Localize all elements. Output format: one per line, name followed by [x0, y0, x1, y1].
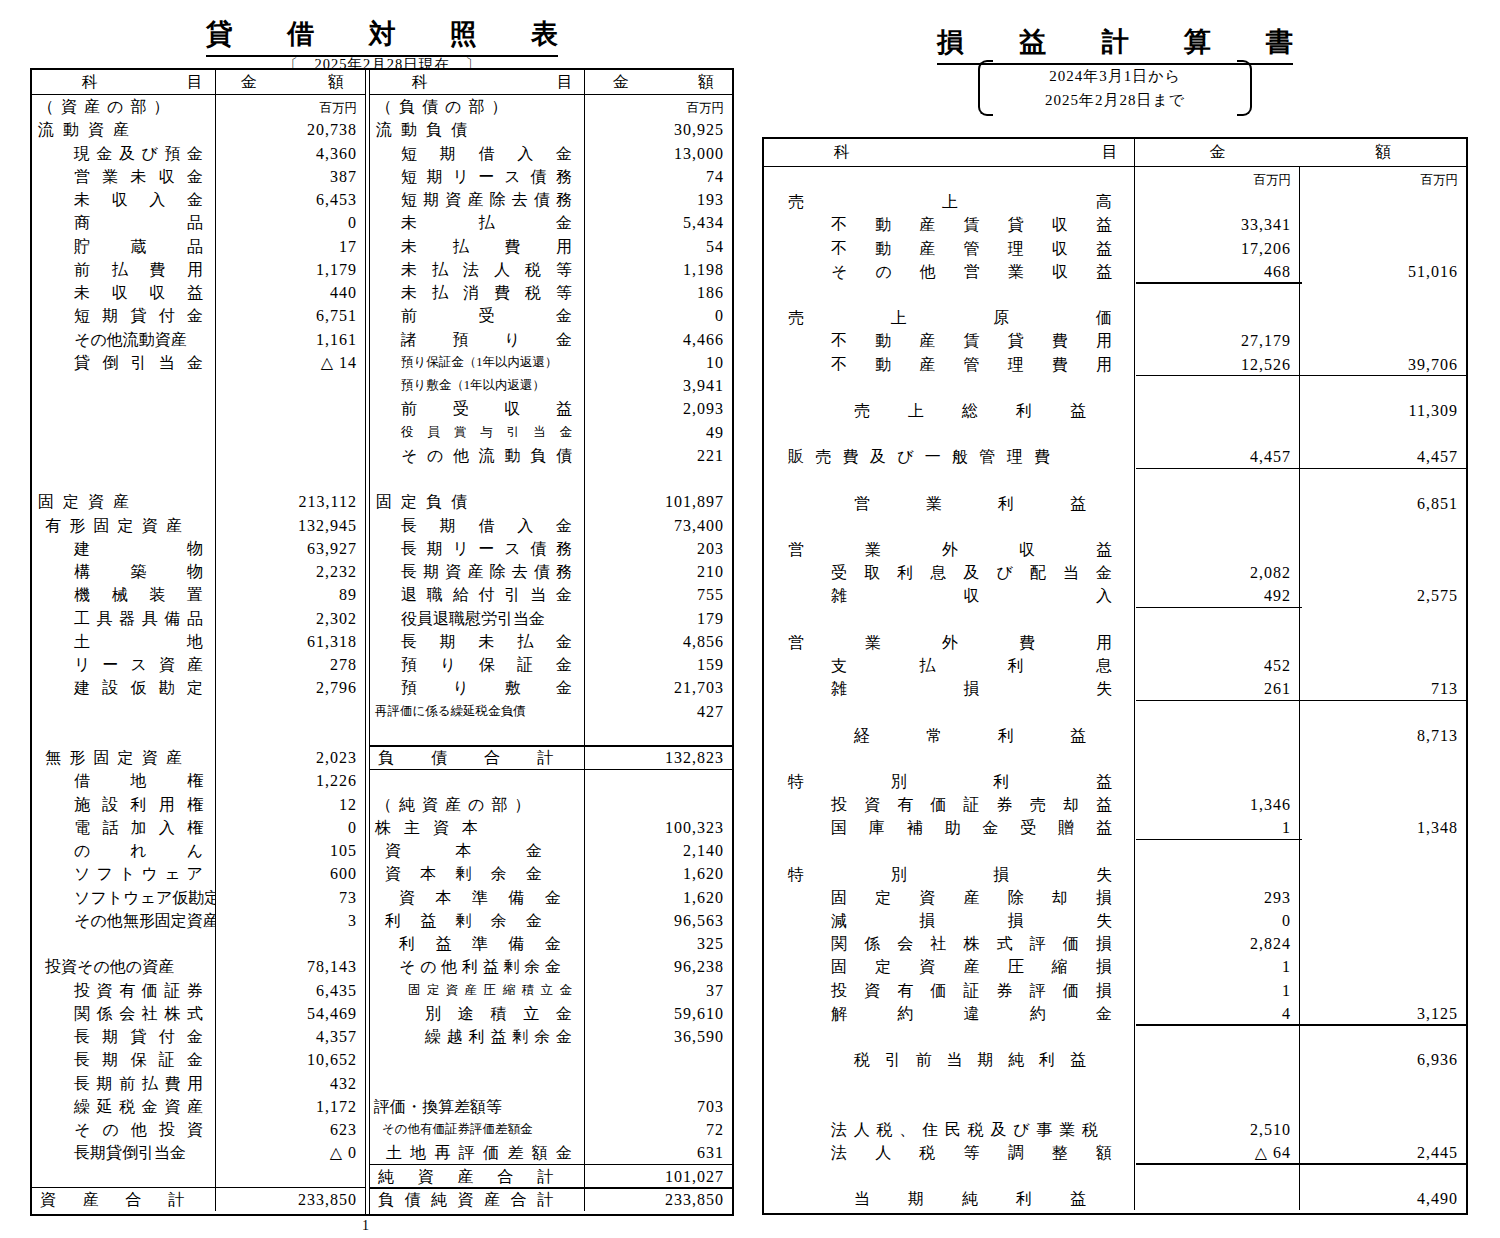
amount-value: 30,925 — [585, 118, 732, 141]
amount-value: 132,945 — [216, 514, 365, 537]
amount-value: 37 — [585, 979, 732, 1002]
account-label: 資本剰余金 — [370, 862, 585, 885]
balance-sheet-header-row: 科目 金額 — [32, 70, 365, 95]
table-row: 固定資産除却損293 — [764, 886, 1466, 909]
table-row: 有形固定資産132,945 — [32, 514, 365, 537]
account-label: 売上総利益 — [764, 399, 1135, 422]
account-label: 再評価に係る繰延税金負債 — [370, 700, 585, 723]
amount-value: 0 — [585, 304, 732, 327]
table-row: 固定資産圧縮損1 — [764, 955, 1466, 978]
amount-value — [1300, 955, 1466, 978]
account-label: 不動産管理費用 — [764, 353, 1135, 376]
amount-value: 1,348 — [1300, 816, 1466, 839]
amount-value — [585, 723, 732, 746]
amount-value — [1135, 700, 1300, 723]
table-row: （純資産の部） — [370, 793, 732, 816]
amount-value — [1135, 376, 1300, 399]
table-row — [32, 932, 365, 955]
balance-sheet-assets-half: 科目 金額 （資産の部）百万円流動資産20,738現金及び預金4,360営業未収… — [32, 70, 366, 1214]
amount-value: 89 — [216, 583, 365, 606]
account-label — [764, 608, 1135, 631]
amount-value — [1300, 770, 1466, 793]
amount-value: 33,341 — [1135, 213, 1300, 236]
table-row: 前払費用1,179 — [32, 258, 365, 281]
profit-loss-title-wrap: 損益計算書 — [762, 24, 1468, 65]
amount-value: 293 — [1135, 886, 1300, 909]
table-row — [370, 1048, 732, 1071]
amount-value — [216, 444, 365, 467]
table-row: 関係会社株式54,469 — [32, 1002, 365, 1025]
amount-value: 10 — [585, 351, 732, 374]
amount-value: 61,318 — [216, 630, 365, 653]
table-row: 受取利息及び配当金2,082 — [764, 561, 1466, 584]
amount-value: 233,850 — [216, 1188, 365, 1211]
account-label: 減損損失 — [764, 909, 1135, 932]
table-row — [32, 723, 365, 746]
table-row — [764, 1025, 1466, 1048]
account-label: 固定負債 — [370, 490, 585, 513]
account-label — [32, 700, 216, 723]
table-row: その他有価証券評価差額金72 — [370, 1118, 732, 1141]
column-header-account: 科目 — [764, 139, 1135, 166]
amount-value: 11,309 — [1300, 399, 1466, 422]
table-row — [32, 374, 365, 397]
amount-value: 59,610 — [585, 1002, 732, 1025]
table-row: 未払金5,434 — [370, 211, 732, 234]
account-label: 資産合計 — [32, 1188, 216, 1211]
account-label: 固定資産圧縮積立金 — [370, 979, 585, 1002]
account-label: 長期資産除去債務 — [370, 560, 585, 583]
table-row — [764, 283, 1466, 306]
account-label: 固定資産除却損 — [764, 886, 1135, 909]
amount-value: 63,927 — [216, 537, 365, 560]
table-row: 不動産管理収益17,206 — [764, 237, 1466, 260]
account-label — [32, 723, 216, 746]
account-label: 営業外費用 — [764, 631, 1135, 654]
table-row — [370, 467, 732, 490]
column-header-account: 科目 — [370, 70, 585, 94]
account-label: 利益剰余金 — [370, 909, 585, 932]
amount-value — [1300, 608, 1466, 631]
account-label: ソフトウェア仮勘定 — [32, 886, 216, 909]
account-label: 法人税、住民税及び事業税 — [764, 1118, 1135, 1141]
table-row: 販売費及び一般管理費4,4574,457 — [764, 445, 1466, 468]
account-label: 不動産管理収益 — [764, 237, 1135, 260]
amount-value: 73,400 — [585, 514, 732, 537]
table-row: 諸預り金4,466 — [370, 328, 732, 351]
amount-value — [1135, 1071, 1300, 1094]
account-label — [764, 283, 1135, 306]
account-label: 預り保証金 — [370, 653, 585, 676]
amount-value: 203 — [585, 537, 732, 560]
amount-value — [1300, 631, 1466, 654]
table-row — [370, 769, 732, 792]
table-row — [764, 422, 1466, 445]
amount-value — [1135, 515, 1300, 538]
account-label: （資産の部） — [32, 95, 216, 118]
amount-value — [1135, 1095, 1300, 1118]
amount-value — [1135, 422, 1300, 445]
table-row: 株主資本100,323 — [370, 816, 732, 839]
table-row: 不動産賃貸収益33,341 — [764, 213, 1466, 236]
table-row — [32, 1165, 365, 1188]
table-row: 無形固定資産2,023 — [32, 746, 365, 769]
account-label: 工具器具備品 — [32, 607, 216, 630]
amount-value — [1300, 237, 1466, 260]
amount-value: 1 — [1135, 816, 1300, 839]
account-label: 受取利息及び配当金 — [764, 561, 1135, 584]
table-row: 百万円百万円 — [764, 167, 1466, 190]
amount-value — [1300, 654, 1466, 677]
table-row: 法人税等調整額△ 642,445 — [764, 1141, 1466, 1164]
account-label: 不動産賃貸費用 — [764, 329, 1135, 352]
amount-value — [1300, 515, 1466, 538]
amount-value: 百万円 — [216, 95, 365, 118]
account-label — [764, 1095, 1135, 1118]
amount-value: 17 — [216, 235, 365, 258]
account-label — [370, 1072, 585, 1095]
amount-value: 96,563 — [585, 909, 732, 932]
account-label: （負債の部） — [370, 95, 585, 118]
account-label: 販売費及び一般管理費 — [764, 445, 1135, 468]
table-row — [764, 1095, 1466, 1118]
amount-value: 452 — [1135, 654, 1300, 677]
amount-value: 96,238 — [585, 955, 732, 978]
account-label: （純資産の部） — [370, 793, 585, 816]
account-label: 諸預り金 — [370, 328, 585, 351]
table-row: 工具器具備品2,302 — [32, 607, 365, 630]
account-label: 短期借入金 — [370, 142, 585, 165]
amount-value: 54,469 — [216, 1002, 365, 1025]
amount-value — [1135, 724, 1300, 747]
amount-value — [1135, 863, 1300, 886]
amount-value: 2,796 — [216, 676, 365, 699]
table-row: 建設仮勘定2,796 — [32, 676, 365, 699]
page: 貸借対照表 〔 2025年2月28日現在 〕 損益計算書 2024年3月1日から… — [0, 0, 1500, 1238]
table-row — [32, 421, 365, 444]
table-row — [764, 608, 1466, 631]
account-label: 建物 — [32, 537, 216, 560]
table-row: その他利益剰余金96,238 — [370, 955, 732, 978]
amount-value: 39,706 — [1300, 353, 1466, 376]
amount-value: 261 — [1135, 677, 1300, 700]
account-label: 前受金 — [370, 304, 585, 327]
period-to: 2025年2月28日まで — [1005, 88, 1225, 112]
amount-value: 1,620 — [585, 886, 732, 909]
amount-value: 468 — [1135, 260, 1300, 283]
table-row: 借地権1,226 — [32, 769, 365, 792]
table-row: リース資産278 — [32, 653, 365, 676]
balance-sheet-title: 貸借対照表 — [206, 16, 558, 57]
table-row: 貸倒引当金△ 14 — [32, 351, 365, 374]
profit-loss-header-row: 科目 金 額 — [764, 139, 1466, 167]
amount-value: 755 — [585, 583, 732, 606]
table-row — [370, 1072, 732, 1095]
amount-value — [1135, 1048, 1300, 1071]
amount-value: 1 — [1135, 979, 1300, 1002]
account-label: 特別利益 — [764, 770, 1135, 793]
account-label: 関係会社株式評価損 — [764, 932, 1135, 955]
amount-value — [1300, 909, 1466, 932]
amount-value: 0 — [216, 816, 365, 839]
table-row: 資本金2,140 — [370, 839, 732, 862]
amount-value: 2,082 — [1135, 561, 1300, 584]
column-header-account: 科目 — [32, 70, 216, 94]
table-row: のれん105 — [32, 839, 365, 862]
amount-value: 百万円 — [1135, 167, 1300, 190]
amount-value: 0 — [1135, 909, 1300, 932]
amount-value — [1300, 886, 1466, 909]
amount-value: 4,357 — [216, 1025, 365, 1048]
amount-value: △ 64 — [1135, 1141, 1300, 1164]
assets-rows: （資産の部）百万円流動資産20,738現金及び預金4,360営業未収金387未収… — [32, 95, 365, 1211]
table-row: 不動産賃貸費用27,179 — [764, 329, 1466, 352]
amount-value: 54 — [585, 235, 732, 258]
table-row: 経常利益8,713 — [764, 724, 1466, 747]
amount-value: 10,652 — [216, 1048, 365, 1071]
table-row: 施設利用権12 — [32, 793, 365, 816]
amount-value: 4 — [1135, 1002, 1300, 1025]
account-label: 未収収益 — [32, 281, 216, 304]
amount-value — [1135, 190, 1300, 213]
bracket-right-icon — [1237, 60, 1252, 116]
amount-value — [216, 700, 365, 723]
account-label: 経常利益 — [764, 724, 1135, 747]
amount-value — [585, 467, 732, 490]
table-row: 利益剰余金96,563 — [370, 909, 732, 932]
amount-value — [1300, 283, 1466, 306]
account-label: 長期リース債務 — [370, 537, 585, 560]
table-row: 純資産合計101,027 — [370, 1165, 732, 1188]
amount-value: 6,453 — [216, 188, 365, 211]
amount-value: 1,226 — [216, 769, 365, 792]
table-row: 特別利益 — [764, 770, 1466, 793]
table-row: 資本剰余金1,620 — [370, 862, 732, 885]
table-row: 長期貸付金4,357 — [32, 1025, 365, 1048]
table-row: 別途積立金59,610 — [370, 1002, 732, 1025]
amount-value: 13,000 — [585, 142, 732, 165]
account-label: 繰越利益剰余金 — [370, 1025, 585, 1048]
amount-value: 186 — [585, 281, 732, 304]
account-label: 繰延税金資産 — [32, 1095, 216, 1118]
table-row: 固定資産圧縮積立金37 — [370, 979, 732, 1002]
table-row: 関係会社株式評価損2,824 — [764, 932, 1466, 955]
table-row: 預り保証金159 — [370, 653, 732, 676]
amount-value — [1135, 1187, 1300, 1210]
account-label: 営業未収金 — [32, 165, 216, 188]
amount-value: 325 — [585, 932, 732, 955]
account-label — [764, 376, 1135, 399]
table-row: 売上原価 — [764, 306, 1466, 329]
account-label: 未払法人税等 — [370, 258, 585, 281]
amount-value — [1300, 561, 1466, 584]
account-label: 未払消費税等 — [370, 281, 585, 304]
account-label: 資本準備金 — [370, 886, 585, 909]
amount-value — [1300, 538, 1466, 561]
account-label — [764, 1164, 1135, 1187]
amount-value: 210 — [585, 560, 732, 583]
amount-value: 159 — [585, 653, 732, 676]
account-label — [370, 769, 585, 792]
amount-value — [1135, 839, 1300, 862]
table-row — [764, 1164, 1466, 1187]
table-row: 未収収益440 — [32, 281, 365, 304]
account-label: 未収入金 — [32, 188, 216, 211]
account-label — [764, 839, 1135, 862]
account-label: 特別損失 — [764, 863, 1135, 886]
amount-value — [1300, 1164, 1466, 1187]
account-label: 有形固定資産 — [32, 514, 216, 537]
column-header-amount: 金額 — [585, 70, 732, 94]
table-row — [32, 397, 365, 420]
table-row: 投資有価証券売却益1,346 — [764, 793, 1466, 816]
amount-value: 21,703 — [585, 676, 732, 699]
account-label: 投資有価証券評価損 — [764, 979, 1135, 1002]
amount-value: 3,941 — [585, 374, 732, 397]
account-label — [370, 1048, 585, 1071]
amount-value — [1300, 1071, 1466, 1094]
amount-value — [1300, 190, 1466, 213]
amount-value: 278 — [216, 653, 365, 676]
table-row: 資産合計233,850 — [32, 1188, 365, 1211]
account-label: 投資有価証券 — [32, 979, 216, 1002]
account-label — [370, 467, 585, 490]
table-row — [764, 747, 1466, 770]
amount-value: 12,526 — [1135, 353, 1300, 376]
table-row: 預り敷金21,703 — [370, 676, 732, 699]
profit-loss-period-lines: 2024年3月1日から 2025年2月28日まで — [1005, 64, 1225, 112]
table-row: 未収入金6,453 — [32, 188, 365, 211]
amount-value: 4,457 — [1300, 445, 1466, 468]
account-label — [764, 700, 1135, 723]
amount-value: △ 14 — [216, 351, 365, 374]
amount-value: 233,850 — [585, 1188, 732, 1211]
amount-value — [585, 1048, 732, 1071]
account-label: ソフトウェア — [32, 862, 216, 885]
table-row — [32, 700, 365, 723]
table-row: その他無形固定資産3 — [32, 909, 365, 932]
account-label — [764, 747, 1135, 770]
account-label: 役員退職慰労引当金 — [370, 607, 585, 630]
account-label: 貯蔵品 — [32, 235, 216, 258]
account-label: 別途積立金 — [370, 1002, 585, 1025]
account-label — [32, 1165, 216, 1188]
amount-value: 387 — [216, 165, 365, 188]
account-label: 機械装置 — [32, 583, 216, 606]
account-label — [764, 1071, 1135, 1094]
table-row: 短期リース債務74 — [370, 165, 732, 188]
amount-value: 1,161 — [216, 328, 365, 351]
balance-sheet-liabilities-half: 科目 金額 （負債の部）百万円流動負債30,925短期借入金13,000短期リー… — [369, 70, 732, 1214]
account-label — [32, 444, 216, 467]
account-label: 退職給付引当金 — [370, 583, 585, 606]
amount-value — [1135, 1164, 1300, 1187]
amount-value: 631 — [585, 1141, 732, 1164]
table-row: 退職給付引当金755 — [370, 583, 732, 606]
account-label: その他有価証券評価差額金 — [370, 1118, 585, 1141]
table-row: 短期資産除去債務193 — [370, 188, 732, 211]
account-label: 投資有価証券売却益 — [764, 793, 1135, 816]
table-row: 役員退職慰労引当金179 — [370, 607, 732, 630]
amount-value — [1300, 863, 1466, 886]
table-row: 当期純利益4,490 — [764, 1187, 1466, 1210]
amount-value — [1300, 422, 1466, 445]
profit-loss-period: 2024年3月1日から 2025年2月28日まで — [762, 60, 1468, 116]
table-row: 未払法人税等1,198 — [370, 258, 732, 281]
table-row: 商品0 — [32, 211, 365, 234]
table-row: 営業未収金387 — [32, 165, 365, 188]
amount-value — [1300, 1095, 1466, 1118]
account-label: 建設仮勘定 — [32, 676, 216, 699]
account-label: 営業利益 — [764, 492, 1135, 515]
amount-value: 1,179 — [216, 258, 365, 281]
account-label: 短期資産除去債務 — [370, 188, 585, 211]
account-label: 未払費用 — [370, 235, 585, 258]
account-label: 借地権 — [32, 769, 216, 792]
account-label: 流動負債 — [370, 118, 585, 141]
amount-value — [1300, 700, 1466, 723]
table-row: 固定負債101,897 — [370, 490, 732, 513]
account-label: 預り敷金（1年以内返還） — [370, 374, 585, 397]
account-label: 売上高 — [764, 190, 1135, 213]
profit-loss-table: 科目 金 額 百万円百万円売上高不動産賃貸収益33,341不動産管理収益17,2… — [762, 137, 1468, 1215]
table-row: 税引前当期純利益6,936 — [764, 1048, 1466, 1071]
account-label: 構築物 — [32, 560, 216, 583]
table-row: その他投資623 — [32, 1118, 365, 1141]
balance-sheet-table: 科目 金額 （資産の部）百万円流動資産20,738現金及び預金4,360営業未収… — [30, 68, 734, 1216]
amount-value: 2,232 — [216, 560, 365, 583]
amount-value — [1135, 770, 1300, 793]
table-row: 再評価に係る繰延税金負債427 — [370, 700, 732, 723]
table-row — [370, 723, 732, 746]
account-label: 土地再評価差額金 — [370, 1141, 585, 1164]
table-row: 営業外費用 — [764, 631, 1466, 654]
amount-value — [1300, 376, 1466, 399]
period-from: 2024年3月1日から — [1005, 64, 1225, 88]
table-row — [764, 515, 1466, 538]
amount-value: 4,457 — [1135, 445, 1300, 468]
amount-value: 492 — [1135, 584, 1300, 607]
table-row: 資本準備金1,620 — [370, 886, 732, 909]
table-row: 支払利息452 — [764, 654, 1466, 677]
amount-value: 2,824 — [1135, 932, 1300, 955]
table-row: 売上高 — [764, 190, 1466, 213]
amount-value — [585, 793, 732, 816]
amount-value: 78,143 — [216, 955, 365, 978]
liabilities-rows: （負債の部）百万円流動負債30,925短期借入金13,000短期リース債務74短… — [370, 95, 732, 1211]
account-label: 不動産賃貸収益 — [764, 213, 1135, 236]
account-label: 負債合計 — [370, 746, 585, 769]
amount-value — [216, 723, 365, 746]
profit-loss-rows: 百万円百万円売上高不動産賃貸収益33,341不動産管理収益17,206その他営業… — [764, 167, 1466, 1210]
account-label: その他営業収益 — [764, 260, 1135, 283]
account-label: 無形固定資産 — [32, 746, 216, 769]
table-row: 短期借入金13,000 — [370, 142, 732, 165]
amount-value — [1300, 1025, 1466, 1048]
account-label — [32, 421, 216, 444]
account-label — [32, 467, 216, 490]
amount-value: 5,434 — [585, 211, 732, 234]
amount-value: △ 0 — [216, 1141, 365, 1164]
table-row: 流動負債30,925 — [370, 118, 732, 141]
table-row: 建物63,927 — [32, 537, 365, 560]
amount-value — [1135, 283, 1300, 306]
account-label: 負債純資産合計 — [370, 1188, 585, 1211]
amount-value: 101,897 — [585, 490, 732, 513]
table-row: 固定資産213,112 — [32, 490, 365, 513]
account-label: その他投資 — [32, 1118, 216, 1141]
amount-value: 6,936 — [1300, 1048, 1466, 1071]
